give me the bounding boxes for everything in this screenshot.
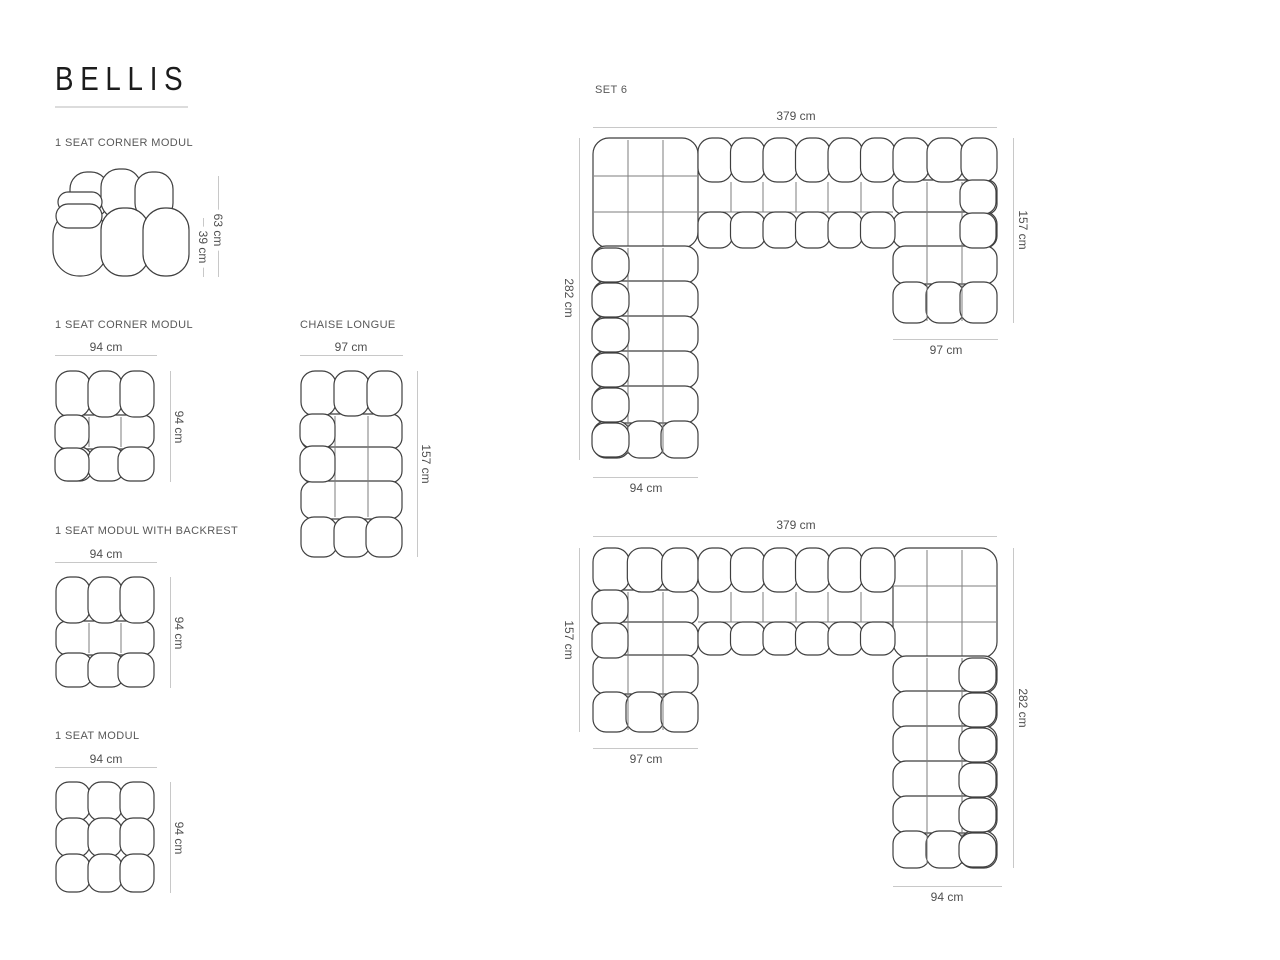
set6-upper-drawing (590, 136, 1014, 462)
set-upper-width: 379 cm (776, 109, 815, 123)
plain-depth: 94 cm (172, 822, 186, 855)
set-upper-left-leg-width: 94 cm (630, 481, 663, 495)
title-underline (55, 106, 188, 108)
dim-line (1013, 138, 1014, 323)
chaise-width: 97 cm (335, 340, 368, 354)
dim-line (1013, 548, 1014, 868)
dim-line (55, 767, 157, 768)
corner-top-width: 94 cm (90, 340, 123, 354)
dim-line (593, 748, 698, 749)
backrest-label: 1 SEAT MODUL WITH BACKREST (55, 525, 238, 537)
corner-module-side-drawing (46, 166, 216, 281)
backrest-depth: 94 cm (172, 617, 186, 650)
dim-line (170, 577, 171, 688)
dim-line (417, 371, 418, 557)
set-lower-left-depth: 157 cm (562, 620, 576, 659)
set-upper-right-leg-width: 97 cm (930, 343, 963, 357)
chaise-label: CHAISE LONGUE (300, 319, 396, 331)
dim-line (593, 477, 698, 478)
backrest-width: 94 cm (90, 547, 123, 561)
dim-total-height: 63 cm (211, 210, 225, 251)
dim-line (579, 138, 580, 460)
plain-width: 94 cm (90, 752, 123, 766)
set-lower-left-leg-width: 97 cm (630, 752, 663, 766)
set-upper-right-depth: 157 cm (1016, 210, 1030, 249)
plain-module-drawing (55, 781, 155, 893)
dim-line (170, 371, 171, 482)
backrest-module-drawing (55, 576, 155, 688)
spec-sheet-page: { "colors": { "title": "#1c1c1c", "under… (0, 0, 1280, 960)
corner-side-label: 1 SEAT CORNER MODUL (55, 137, 193, 149)
set6-lower-drawing (590, 546, 1014, 872)
corner-module-top-drawing (55, 370, 155, 482)
corner-top-depth: 94 cm (172, 411, 186, 444)
set-lower-right-depth: 282 cm (1016, 688, 1030, 727)
dim-line (170, 782, 171, 893)
plain-label: 1 SEAT MODUL (55, 730, 139, 742)
dim-line (893, 339, 998, 340)
dim-line (55, 562, 157, 563)
set-lower-right-leg-width: 94 cm (931, 890, 964, 904)
set-lower-width: 379 cm (776, 518, 815, 532)
dim-line (55, 355, 157, 356)
dim-line (593, 536, 997, 537)
set-upper-left-depth: 282 cm (562, 278, 576, 317)
set6-label: SET 6 (595, 84, 627, 96)
dim-line (593, 127, 997, 128)
dim-line (300, 355, 403, 356)
dim-line (579, 548, 580, 732)
chaise-longue-drawing (300, 370, 403, 558)
corner-top-label: 1 SEAT CORNER MODUL (55, 319, 193, 331)
chaise-depth: 157 cm (419, 444, 433, 483)
page-title: BELLIS (55, 60, 189, 98)
dim-seat-height: 39 cm (196, 227, 210, 268)
dim-line (893, 886, 1002, 887)
